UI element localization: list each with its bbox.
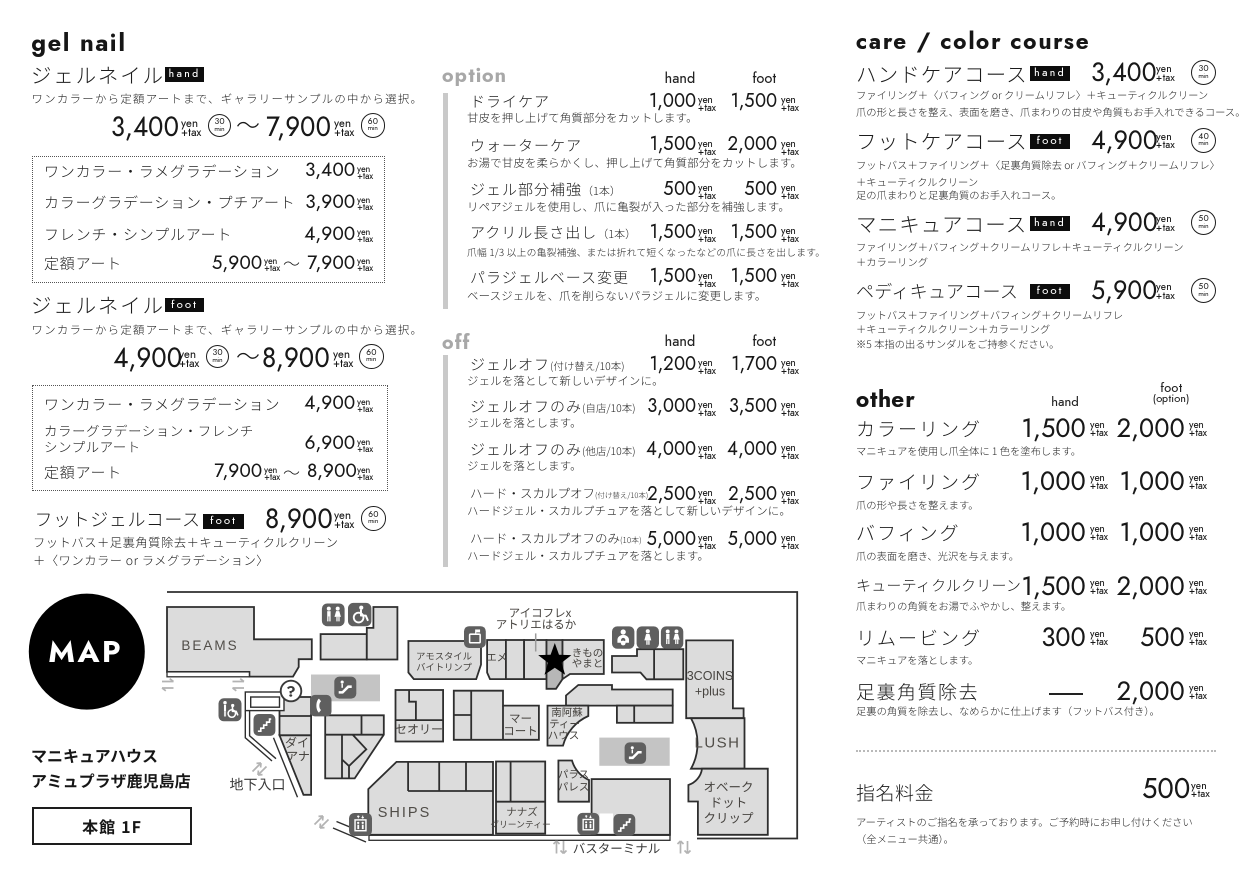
svg-text:バイトリンプ: バイトリンプ <box>416 660 472 674</box>
svg-text:クリップ: クリップ <box>703 808 754 827</box>
svg-text:バスターミナル: バスターミナル <box>573 838 661 857</box>
svg-text:ハウス: ハウス <box>548 728 580 743</box>
svg-text:エメ: エメ <box>486 650 507 665</box>
svg-text:LUSH: LUSH <box>694 735 740 752</box>
svg-text:アトリエはるか: アトリエはるか <box>496 617 577 633</box>
svg-text:やまと: やまと <box>572 656 604 671</box>
svg-text:SHIPS: SHIPS <box>378 805 432 821</box>
svg-text:地下入口: 地下入口 <box>230 775 286 795</box>
svg-text:セオリー: セオリー <box>395 721 443 738</box>
svg-text:BEAMS: BEAMS <box>181 638 238 653</box>
svg-text:アナ: アナ <box>286 748 310 765</box>
svg-text:?: ? <box>286 681 295 703</box>
svg-text:MAP: MAP <box>48 631 123 674</box>
svg-text:パレス: パレス <box>558 780 590 795</box>
svg-text:グリーンティー: グリーンティー <box>490 818 551 831</box>
svg-text:+plus: +plus <box>695 685 725 699</box>
svg-text:コート: コート <box>503 723 538 739</box>
svg-text:3COINS: 3COINS <box>687 669 734 683</box>
